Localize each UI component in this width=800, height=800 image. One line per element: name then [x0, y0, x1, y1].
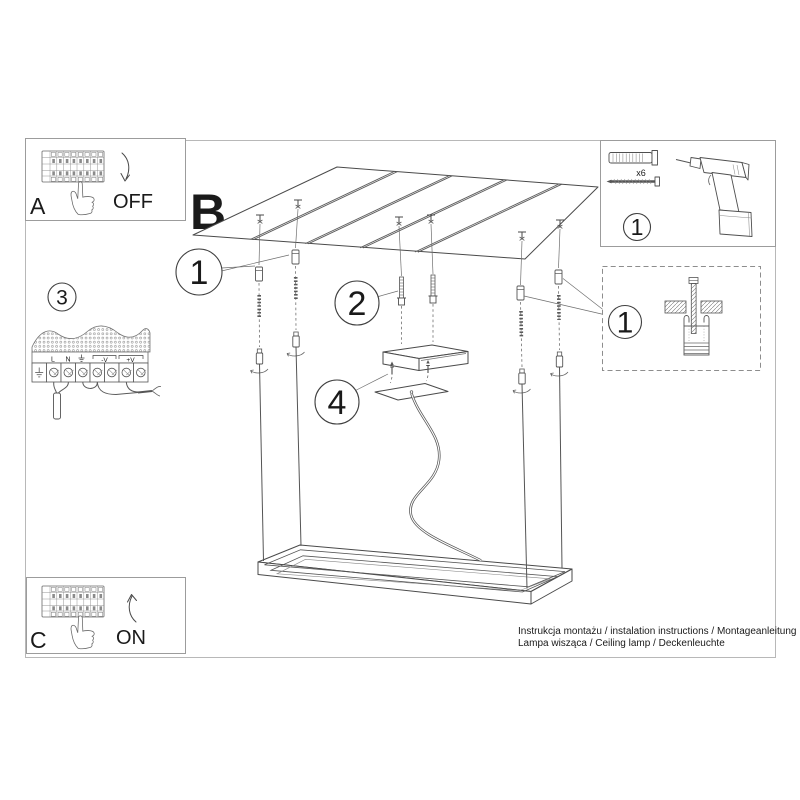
step-a-panel: A OFF: [26, 139, 186, 221]
suspension-wire: [260, 364, 264, 561]
detail-box-number: 1: [617, 307, 634, 340]
wall-plug-icon: [256, 267, 263, 281]
panel-c-state-label: ON: [116, 627, 146, 649]
psu-box: [383, 345, 468, 383]
breaker-panel-icon: [42, 151, 104, 182]
callout-1-number: 1: [190, 254, 209, 292]
canopy-plate: [375, 384, 448, 401]
wall-plug-icon: [609, 151, 658, 166]
suspension-wire: [296, 347, 301, 546]
step-c-panel: C ON: [27, 578, 186, 654]
callout-2-number: 2: [348, 285, 367, 323]
wire-end-connector: [138, 386, 161, 396]
parts-box: x6 1: [601, 141, 776, 247]
footer: Instrukcja montażu / instalation instruc…: [518, 626, 797, 649]
dowel-quantity-label: x6: [636, 168, 646, 178]
screw-icon: [397, 277, 406, 305]
lamp-frame: [258, 545, 572, 604]
psu-wires: [54, 382, 140, 395]
suspension-wire: [560, 367, 563, 568]
parts-box-number: 1: [631, 214, 644, 240]
wall-plug-icon: [555, 270, 562, 284]
terminal-label-l: L: [51, 357, 55, 364]
power-cable: [410, 394, 481, 561]
wiring-step: 3 L N -V +V: [32, 283, 161, 419]
suspension-wire: [522, 384, 527, 589]
screw-icon: [429, 275, 438, 303]
callout-4: 4: [315, 374, 388, 424]
panel-a-letter: A: [30, 193, 46, 219]
wall-plug-icon: [292, 250, 299, 264]
callout-1: 1: [176, 249, 289, 295]
panel-a-state-label: OFF: [113, 191, 153, 213]
cable-sleeve: [54, 393, 61, 419]
wiring-step-number: 3: [56, 287, 68, 310]
ceiling-plane: [193, 167, 598, 259]
mounting-screws: [397, 275, 438, 344]
footer-line-2: Lampa wisząca / Ceiling lamp / Deckenleu…: [518, 638, 725, 649]
callout-2: 2: [335, 281, 398, 325]
breaker-panel-icon: [42, 586, 104, 617]
terminal-label-n: N: [65, 357, 70, 364]
callout-4-number: 4: [328, 384, 347, 422]
footer-line-1: Instrukcja montażu / instalation instruc…: [518, 626, 797, 637]
instruction-sheet: A OFF C ON 3 L N -V +V: [0, 0, 800, 800]
ceiling-illustration: [193, 167, 598, 400]
terminal-row: [32, 363, 148, 382]
wall-plug-icon: [517, 286, 524, 300]
panel-c-letter: C: [30, 627, 47, 653]
psu-mesh-body: [32, 326, 150, 352]
